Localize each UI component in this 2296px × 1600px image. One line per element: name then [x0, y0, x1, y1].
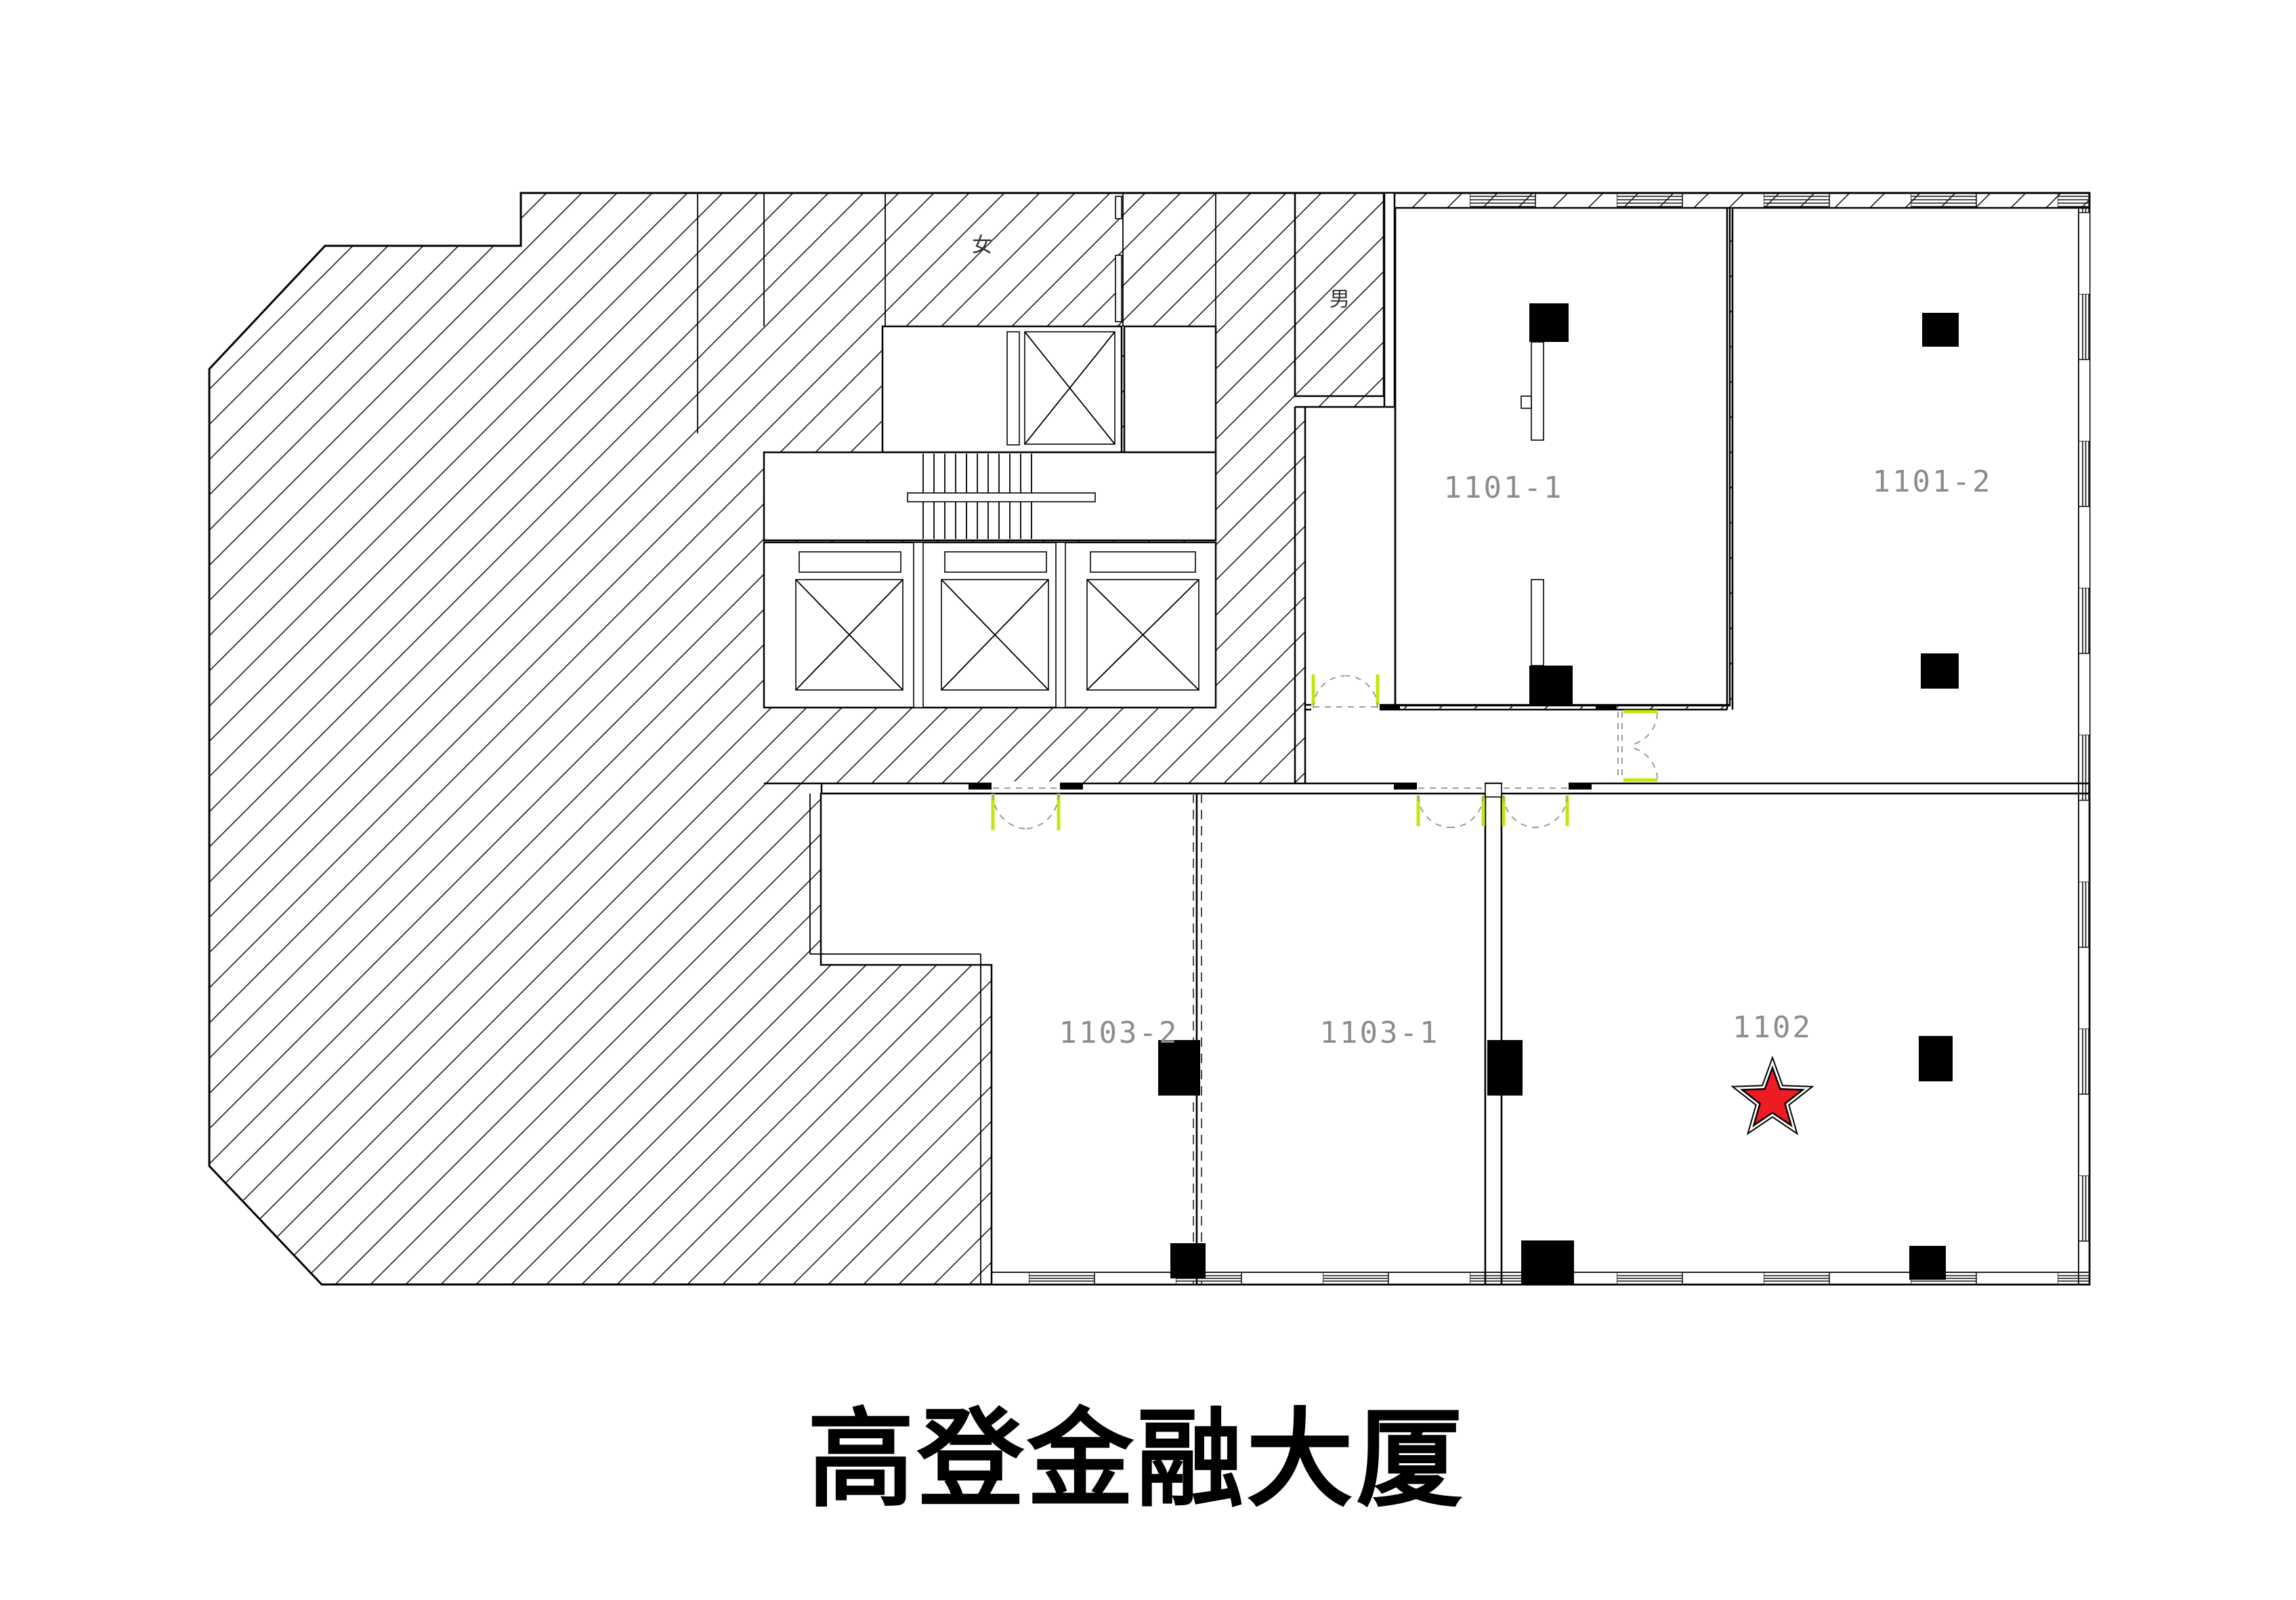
- vent-duct: [1007, 332, 1019, 445]
- column: [1170, 1243, 1206, 1278]
- wall-stub-lower: [1531, 580, 1544, 666]
- female-wc-label: 女: [972, 234, 992, 257]
- staircase: [764, 452, 1216, 540]
- column: [1529, 303, 1569, 342]
- corridor-vertical: [1305, 407, 1395, 710]
- stair-handrail: [908, 493, 1095, 502]
- door-pillar: [1485, 783, 1502, 797]
- floor-plan-svg: 1101-1 1101-2 1103-2 1103-1 1102 女 男 高登金…: [0, 0, 2296, 1600]
- column: [1919, 1036, 1953, 1081]
- column: [1909, 1246, 1946, 1280]
- shaft-room-b: [1124, 326, 1216, 452]
- wall-sliver: [1384, 194, 1395, 406]
- room-1101-1[interactable]: [1395, 208, 1730, 706]
- wall-stub-upper: [1531, 342, 1544, 440]
- room-label-1103-1: 1103-1: [1320, 1016, 1440, 1050]
- column: [1921, 653, 1959, 689]
- room-label-1103-2: 1103-2: [1059, 1016, 1179, 1050]
- room-label-1102: 1102: [1732, 1010, 1812, 1045]
- wc-wall-stub-2: [1115, 255, 1122, 322]
- wc-wall-stub-1: [1115, 196, 1122, 219]
- room-label-1101-2: 1101-2: [1873, 464, 1993, 499]
- building-title: 高登金融大厦: [807, 1398, 1466, 1522]
- column: [1521, 1240, 1574, 1285]
- column: [1922, 313, 1959, 347]
- column: [1487, 1040, 1523, 1096]
- male-wc-label: 男: [1330, 288, 1350, 311]
- elevator-shaft-3: [1087, 552, 1199, 690]
- room-label-1101-1: 1101-1: [1444, 471, 1564, 505]
- vent-shaft: [1025, 332, 1115, 444]
- elevator-shaft-2: [941, 552, 1048, 690]
- elevator-shaft-1: [796, 552, 903, 690]
- wall-stub-notch: [1521, 396, 1531, 408]
- elevator-bank: [764, 542, 1216, 708]
- wall-1103-1-1102: [1485, 794, 1502, 1284]
- column: [1529, 666, 1573, 705]
